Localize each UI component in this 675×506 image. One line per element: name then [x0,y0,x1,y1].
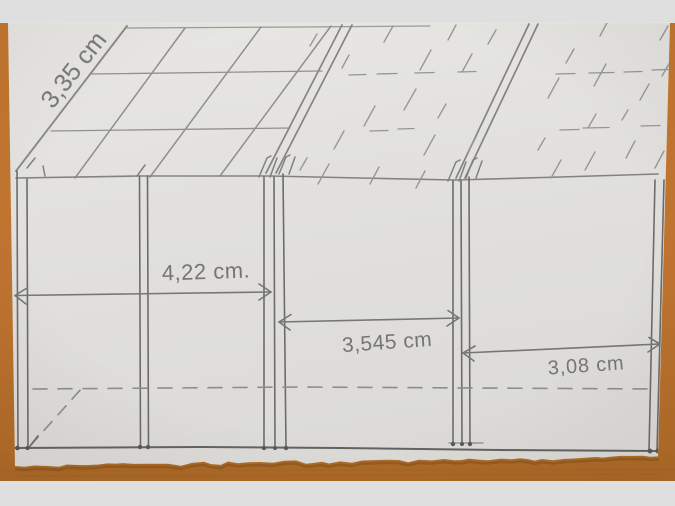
svg-text:4,22 cm.: 4,22 cm. [161,257,250,285]
